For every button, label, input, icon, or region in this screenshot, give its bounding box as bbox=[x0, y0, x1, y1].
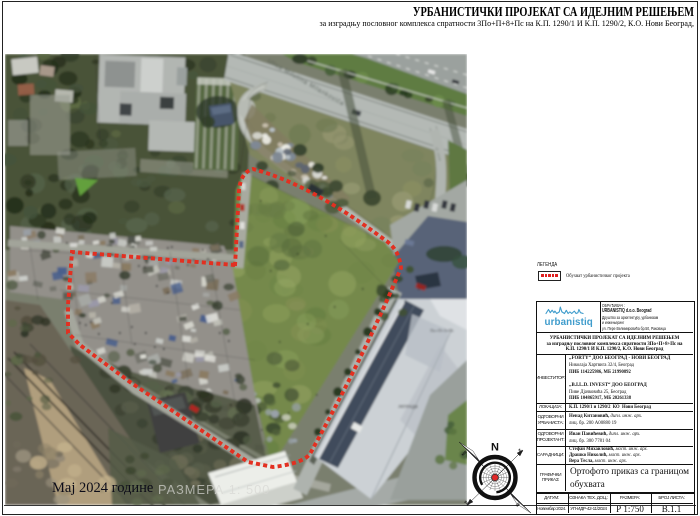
svg-text:N: N bbox=[491, 442, 499, 454]
svg-text:РАЗМЕРА 1: 500: РАЗМЕРА 1: 500 bbox=[158, 482, 270, 497]
svg-text:По+П+3+Пс: По+П+3+Пс bbox=[430, 328, 454, 333]
svg-text:легенда: легенда bbox=[398, 404, 418, 410]
svg-text:Мај 2024 године: Мај 2024 године bbox=[52, 480, 153, 496]
svg-text:urbanistiq: urbanistiq bbox=[545, 317, 593, 328]
